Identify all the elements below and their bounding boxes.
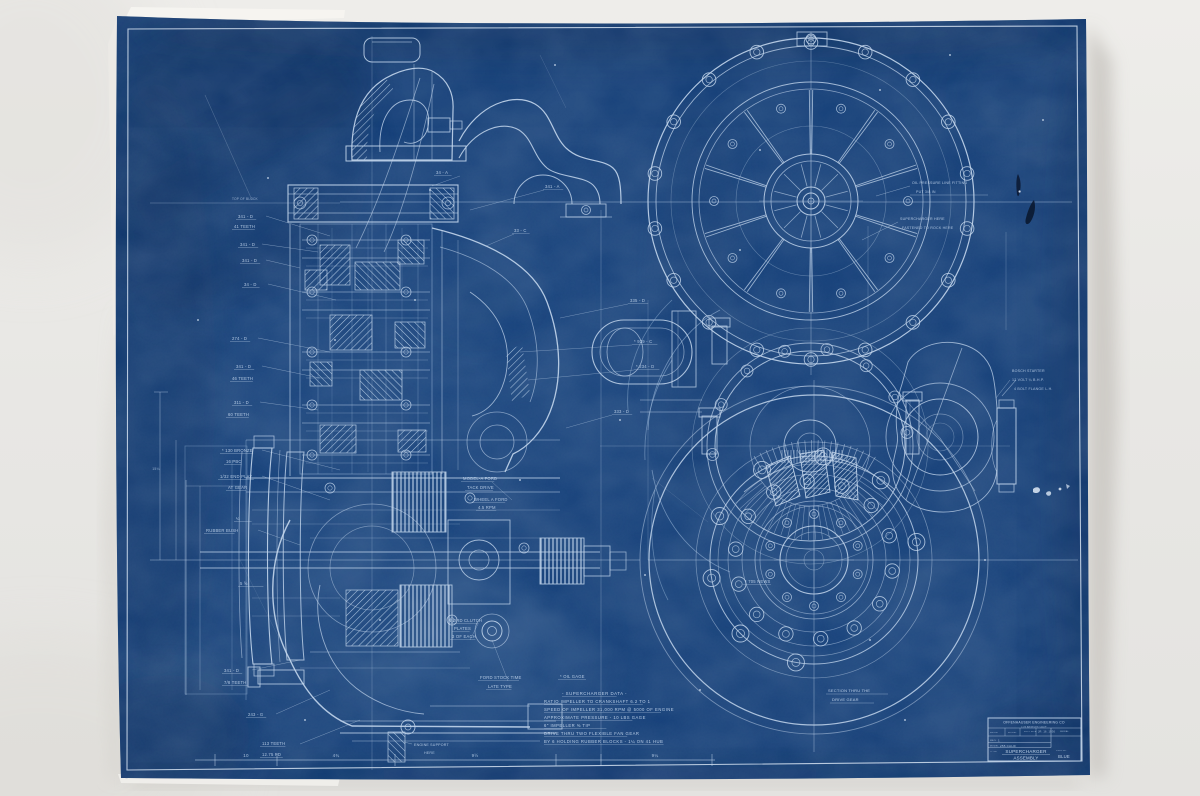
svg-text:9¼: 9¼ (652, 753, 659, 758)
svg-text:10: 10 (243, 753, 249, 758)
svg-text:12.75 PD: 12.75 PD (262, 752, 281, 757)
svg-text:DRIVE GEAR: DRIVE GEAR (832, 697, 859, 702)
svg-text:SECTION THRU THE: SECTION THRU THE (828, 688, 870, 693)
svg-text:* OIL GAGE: * OIL GAGE (560, 674, 585, 679)
svg-text:9½: 9½ (472, 752, 479, 758)
svg-text:SUPERCHARGER: SUPERCHARGER (1005, 749, 1047, 754)
svg-text:41 TEETH: 41 TEETH (234, 224, 255, 229)
svg-text:7/8 TEETH: 7/8 TEETH (224, 680, 246, 685)
svg-text:341 - A: 341 - A (545, 184, 560, 189)
svg-text:12 VOLT ¼ B.H.P.: 12 VOLT ¼ B.H.P. (1012, 378, 1044, 382)
svg-text:335 - D: 335 - D (630, 298, 645, 303)
svg-text:1/32 END PLAY: 1/32 END PLAY (220, 474, 252, 479)
svg-text:- SUPERCHARGER DATA -: - SUPERCHARGER DATA - (562, 691, 627, 696)
svg-text:BLUE: BLUE (1058, 754, 1070, 759)
svg-text:16 PBC: 16 PBC (226, 459, 242, 464)
svg-text:255 CALIF: 255 CALIF (1000, 744, 1016, 748)
svg-text:TOP OF BLOCK: TOP OF BLOCK (232, 197, 259, 201)
svg-text:3 OF EACH: 3 OF EACH (452, 634, 476, 639)
svg-text:333 - D: 333 - D (614, 409, 629, 414)
svg-text:DRIVE THRU TWO FLEXIBLE FAN GE: DRIVE THRU TWO FLEXIBLE FAN GEAR (544, 731, 639, 736)
svg-text:PLATES: PLATES (454, 626, 471, 631)
svg-text:341 - D: 341 - D (238, 214, 253, 219)
svg-text:SERIAL: SERIAL (1060, 730, 1070, 733)
svg-text:HERE: HERE (424, 751, 435, 755)
svg-text:¼: ¼ (236, 516, 240, 521)
svg-text:34 - A: 34 - A (436, 170, 448, 175)
svg-text:4 BOLT FLANGE L.H.: 4 BOLT FLANGE L.H. (1014, 387, 1053, 391)
svg-text:DWG NO: DWG NO (1056, 750, 1067, 752)
svg-text:341 - D: 341 - D (224, 668, 239, 673)
svg-text:WHEEL A FORD: WHEEL A FORD (474, 497, 508, 502)
svg-text:* 234 - D: * 234 - D (636, 364, 654, 369)
svg-text:MATL: MATL (990, 739, 997, 742)
svg-text:60 TEETH: 60 TEETH (228, 412, 249, 417)
svg-text:113 TEETH: 113 TEETH (262, 741, 285, 746)
svg-text:MODEL-A FORD: MODEL-A FORD (463, 476, 497, 481)
svg-text:ENGINE SUPPORT: ENGINE SUPPORT (414, 743, 449, 747)
svg-text:SPEED OF IMPELLER 31,000 RPM @: SPEED OF IMPELLER 31,000 RPM @ 5000 OF E… (544, 707, 674, 712)
svg-text:* 705 NEWS: * 705 NEWS (745, 579, 771, 584)
svg-text:5 ⅝: 5 ⅝ (240, 581, 248, 586)
svg-text:PUT 3/8 IN: PUT 3/8 IN (916, 190, 936, 194)
svg-text:341 - D: 341 - D (240, 242, 255, 247)
svg-text:FULL SIZE: FULL SIZE (1024, 731, 1037, 733)
svg-text:1: 1 (998, 739, 1000, 743)
svg-text:FASTENED TO ROCK HERE: FASTENED TO ROCK HERE (902, 226, 954, 230)
svg-text:274 - D: 274 - D (232, 336, 247, 341)
svg-text:SUPERCHARGER HERE: SUPERCHARGER HERE (900, 217, 945, 221)
svg-text:6" IMPELLER ⅜ TIP: 6" IMPELLER ⅜ TIP (544, 723, 590, 728)
svg-text:TITLE: TITLE (990, 751, 997, 753)
svg-text:TACK DRIVE: TACK DRIVE (467, 485, 494, 490)
svg-text:311 - D: 311 - D (234, 400, 249, 405)
svg-text:FORD STOCK TIME: FORD STOCK TIME (480, 675, 521, 680)
svg-text:APPROXIMATE PRESSURE - 10 LBS: APPROXIMATE PRESSURE - 10 LBS GAGE (544, 715, 646, 720)
svg-text:* 939 - C: * 939 - C (634, 339, 652, 344)
svg-text:ASSEMBLY: ASSEMBLY (1014, 756, 1039, 761)
svg-text:OIL PRESSURE LINE FITTING: OIL PRESSURE LINE FITTING (912, 181, 967, 185)
svg-text:34 - D: 34 - D (244, 282, 257, 287)
svg-text:4.5 RPM: 4.5 RPM (478, 505, 496, 510)
svg-text:FRONT: FRONT (990, 732, 999, 734)
svg-text:BOSCH STARTER: BOSCH STARTER (1012, 369, 1045, 373)
svg-text:341 - D: 341 - D (242, 258, 257, 263)
svg-text:341 - D: 341 - D (236, 364, 251, 369)
svg-text:LATE TYPE: LATE TYPE (488, 684, 512, 689)
svg-text:OFFENHAUSER ENGINEERING CO: OFFENHAUSER ENGINEERING CO (1003, 721, 1065, 725)
svg-text:46 TEETH: 46 TEETH (232, 376, 253, 381)
svg-text:RATIO IMPELLER TO CRANKSHAFT: RATIO IMPELLER TO CRANKSHAFT 6.2 TO 1 (544, 699, 651, 704)
svg-text:JR. 16. 1936: JR. 16. 1936 (1038, 730, 1055, 734)
svg-text:15¼: 15¼ (152, 467, 159, 471)
svg-text:BY 6 HOLDING RUBBER BLOCKS - 1: BY 6 HOLDING RUBBER BLOCKS - 1¼ ON 41 HU… (544, 739, 663, 744)
svg-text:* 130 BRONZE: * 130 BRONZE (222, 448, 253, 453)
svg-text:243 - G: 243 - G (248, 712, 263, 717)
svg-text:RUBBER BUSH: RUBBER BUSH (206, 528, 238, 533)
svg-text:MODEL: MODEL (1008, 732, 1017, 734)
svg-text:33 - C: 33 - C (514, 228, 527, 233)
svg-text:MODEL: MODEL (990, 746, 999, 748)
svg-text:4¾: 4¾ (333, 753, 340, 758)
svg-text:FORD CLUTCH: FORD CLUTCH (450, 618, 482, 623)
svg-text:AT GEAR: AT GEAR (228, 485, 247, 490)
